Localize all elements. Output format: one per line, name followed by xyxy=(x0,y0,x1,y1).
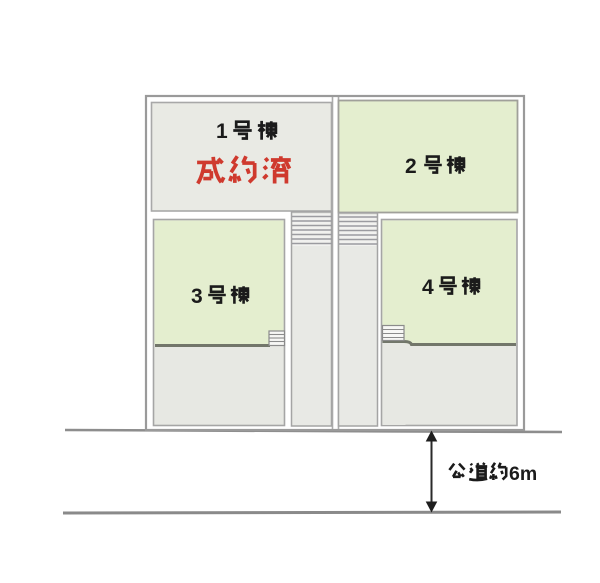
svg-text:4: 4 xyxy=(422,276,434,299)
svg-text:3: 3 xyxy=(191,285,203,308)
svg-text:2: 2 xyxy=(405,155,417,178)
svg-text:1: 1 xyxy=(216,120,228,143)
svg-text:6m: 6m xyxy=(509,463,537,485)
